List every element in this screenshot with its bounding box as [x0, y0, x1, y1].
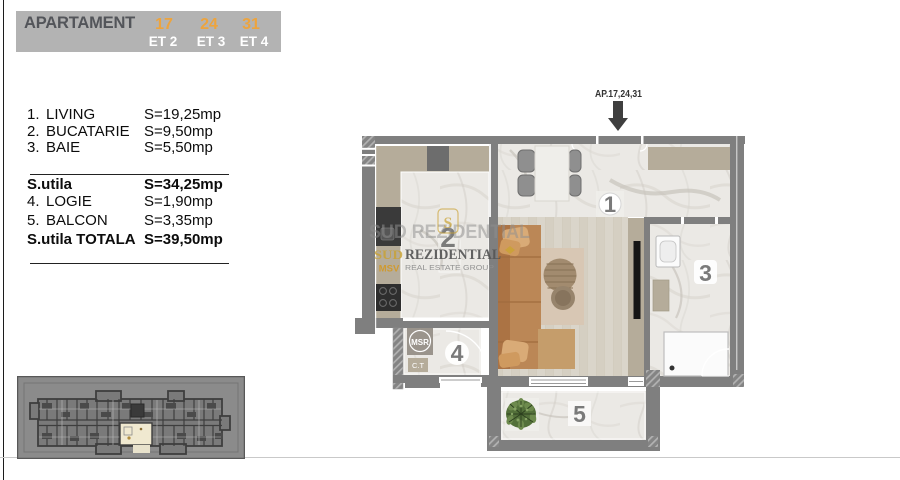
- svg-text:REAL ESTATE GROUP: REAL ESTATE GROUP: [405, 265, 494, 272]
- svg-text:5: 5: [573, 401, 586, 427]
- svg-text:S: S: [444, 215, 453, 232]
- svg-text:C.T: C.T: [412, 361, 425, 370]
- svg-text:SUD: SUD: [374, 247, 403, 262]
- svg-text:3: 3: [699, 260, 712, 286]
- svg-text:MSV: MSV: [379, 264, 400, 275]
- svg-text:MSR: MSR: [411, 338, 429, 347]
- svg-text:1: 1: [604, 192, 616, 217]
- svg-text:REZIDENTIAL: REZIDENTIAL: [405, 247, 501, 263]
- svg-text:AP.17,24,31: AP.17,24,31: [595, 89, 642, 100]
- svg-text:4: 4: [451, 340, 464, 366]
